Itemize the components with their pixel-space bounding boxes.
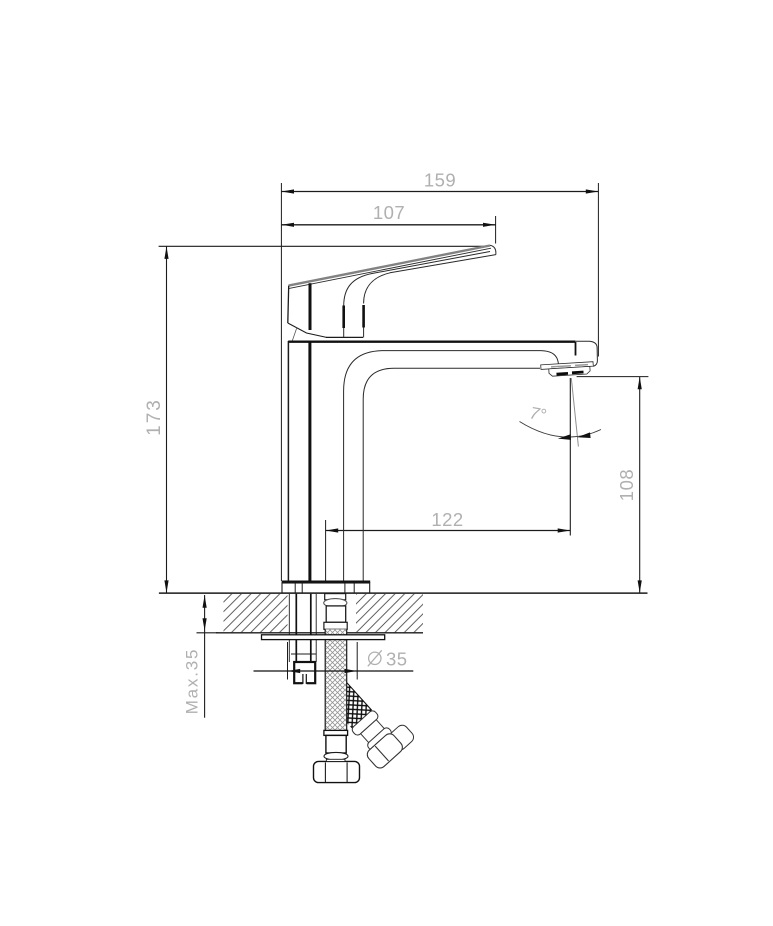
- svg-text:173: 173: [144, 398, 165, 436]
- svg-text:107: 107: [373, 202, 405, 223]
- svg-text:122: 122: [431, 509, 463, 530]
- svg-text:108: 108: [616, 469, 637, 501]
- svg-text:159: 159: [424, 170, 456, 191]
- svg-text:7°: 7°: [528, 403, 548, 425]
- svg-text:Max.35: Max.35: [183, 648, 202, 715]
- svg-text:35: 35: [386, 649, 408, 670]
